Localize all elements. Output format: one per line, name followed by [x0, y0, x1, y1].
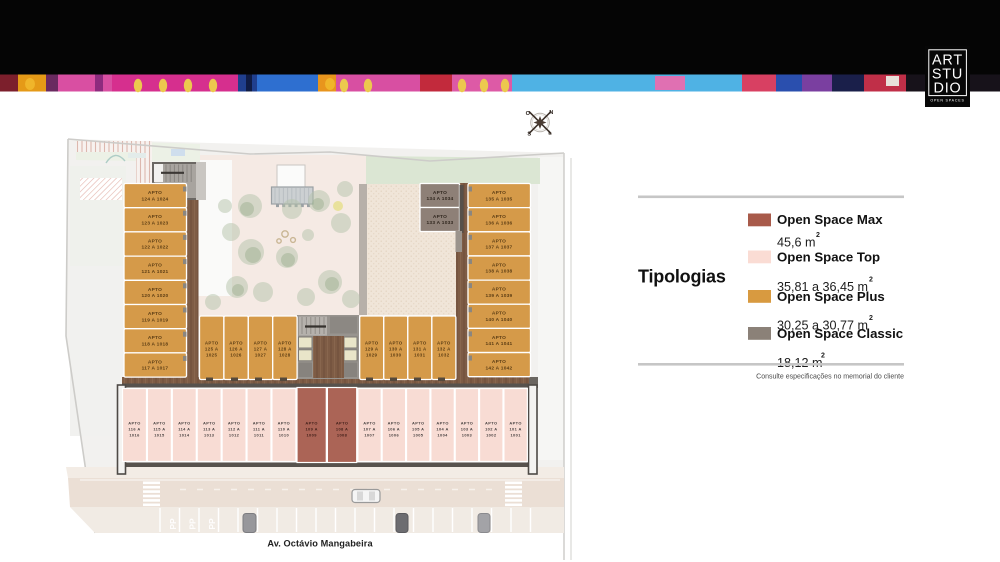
svg-text:APTO: APTO [148, 214, 162, 220]
svg-text:1015: 1015 [154, 433, 165, 438]
svg-text:Consulte especificações no mem: Consulte especificações no memorial do c… [756, 374, 904, 381]
svg-text:PP: PP [207, 518, 217, 530]
svg-text:1010: 1010 [279, 433, 290, 438]
svg-text:PP: PP [188, 518, 198, 530]
svg-text:APTO: APTO [205, 340, 219, 345]
svg-text:S: S [527, 132, 531, 138]
svg-text:119 A 1019: 119 A 1019 [142, 317, 169, 323]
svg-text:APTO: APTO [492, 190, 506, 196]
svg-text:102 A: 102 A [485, 427, 497, 432]
svg-text:120 A 1020: 120 A 1020 [142, 293, 169, 299]
svg-text:1007: 1007 [364, 433, 375, 438]
svg-text:45,6 m: 45,6 m [777, 236, 816, 250]
svg-text:1005: 1005 [413, 433, 424, 438]
svg-text:142 A 1042: 142 A 1042 [486, 365, 513, 371]
svg-text:APTO: APTO [433, 214, 447, 220]
svg-text:113 A: 113 A [203, 427, 215, 432]
svg-text:105 A: 105 A [412, 427, 424, 432]
svg-text:APTO: APTO [148, 359, 162, 365]
svg-text:110 A: 110 A [278, 427, 290, 432]
svg-text:Open Space Top: Open Space Top [777, 250, 880, 265]
svg-text:1004: 1004 [437, 433, 448, 438]
svg-text:141 A 1041: 141 A 1041 [486, 341, 513, 347]
svg-text:L: L [548, 131, 552, 137]
svg-text:APTO: APTO [228, 420, 240, 425]
svg-text:114 A: 114 A [178, 427, 190, 432]
svg-text:1031: 1031 [414, 353, 426, 358]
svg-text:APTO: APTO [253, 420, 265, 425]
svg-text:2: 2 [821, 353, 825, 360]
svg-text:124 A 1024: 124 A 1024 [142, 196, 169, 202]
svg-text:APTO: APTO [436, 420, 448, 425]
svg-text:1014: 1014 [179, 433, 190, 438]
svg-text:115 A: 115 A [153, 427, 165, 432]
svg-text:1025: 1025 [206, 353, 218, 358]
svg-text:APTO: APTO [178, 420, 190, 425]
svg-text:1006: 1006 [389, 433, 400, 438]
svg-text:135 A 1035: 135 A 1035 [486, 196, 513, 202]
svg-text:APTO: APTO [153, 420, 165, 425]
svg-text:APTO: APTO [278, 340, 292, 345]
svg-text:116 A: 116 A [128, 427, 140, 432]
svg-text:Open Space Plus: Open Space Plus [777, 289, 885, 304]
svg-text:Tipologias: Tipologias [638, 267, 726, 287]
svg-text:123 A 1023: 123 A 1023 [142, 221, 169, 227]
svg-text:134 A 1034: 134 A 1034 [427, 196, 454, 202]
svg-text:1012: 1012 [229, 433, 240, 438]
svg-text:APTO: APTO [413, 340, 427, 345]
svg-text:106 A: 106 A [388, 427, 400, 432]
svg-text:1002: 1002 [486, 433, 497, 438]
svg-text:APTO: APTO [509, 420, 521, 425]
svg-text:APTO: APTO [148, 190, 162, 196]
svg-text:1009: 1009 [306, 433, 317, 438]
svg-text:APTO: APTO [389, 340, 403, 345]
svg-text:APTO: APTO [254, 340, 268, 345]
svg-text:125 A: 125 A [205, 347, 219, 352]
svg-text:126 A: 126 A [229, 347, 243, 352]
svg-text:DIO: DIO [934, 81, 962, 97]
svg-text:1011: 1011 [254, 433, 265, 438]
svg-text:APTO: APTO [148, 311, 162, 317]
svg-text:103 A: 103 A [461, 427, 473, 432]
svg-text:Open Space Classic: Open Space Classic [777, 326, 903, 341]
svg-text:PP: PP [168, 518, 178, 530]
svg-text:OPEN SPACES: OPEN SPACES [930, 99, 964, 103]
svg-text:APTO: APTO [492, 238, 506, 244]
svg-text:136 A 1036: 136 A 1036 [486, 220, 513, 226]
svg-text:118 A 1018: 118 A 1018 [142, 342, 169, 348]
svg-text:APTO: APTO [492, 335, 506, 341]
svg-text:129 A: 129 A [365, 347, 379, 352]
svg-text:1013: 1013 [204, 433, 215, 438]
svg-text:2: 2 [869, 315, 873, 322]
svg-text:107 A: 107 A [363, 427, 375, 432]
svg-text:APTO: APTO [148, 263, 162, 269]
svg-text:138 A 1038: 138 A 1038 [486, 269, 513, 275]
svg-text:1008: 1008 [337, 433, 348, 438]
svg-text:APTO: APTO [492, 214, 506, 220]
svg-text:1001: 1001 [510, 433, 521, 438]
svg-text:1030: 1030 [390, 353, 402, 358]
svg-text:APTO: APTO [485, 420, 497, 425]
svg-text:APTO: APTO [128, 420, 140, 425]
svg-text:O: O [526, 111, 531, 117]
svg-text:128 A: 128 A [278, 347, 292, 352]
svg-text:121 A 1021: 121 A 1021 [142, 269, 169, 275]
svg-text:117 A 1017: 117 A 1017 [142, 366, 169, 372]
svg-text:111 A: 111 A [253, 427, 265, 432]
svg-text:130 A: 130 A [389, 347, 403, 352]
svg-text:APTO: APTO [305, 420, 317, 425]
svg-text:133 A 1033: 133 A 1033 [427, 220, 454, 226]
svg-text:137 A 1037: 137 A 1037 [486, 245, 513, 251]
svg-text:APTO: APTO [412, 420, 424, 425]
svg-text:APTO: APTO [365, 340, 379, 345]
svg-text:APTO: APTO [492, 311, 506, 317]
svg-text:APTO: APTO [278, 420, 290, 425]
svg-text:122 A 1022: 122 A 1022 [142, 245, 169, 251]
svg-text:112 A: 112 A [228, 427, 240, 432]
svg-text:1029: 1029 [366, 353, 378, 358]
svg-text:1027: 1027 [255, 353, 267, 358]
svg-text:109 A: 109 A [305, 427, 317, 432]
svg-text:APTO: APTO [148, 335, 162, 341]
svg-text:APTO: APTO [461, 420, 473, 425]
svg-text:132 A: 132 A [437, 347, 451, 352]
svg-text:APTO: APTO [363, 420, 375, 425]
svg-text:2: 2 [869, 277, 873, 284]
svg-text:APTO: APTO [492, 262, 506, 268]
svg-text:101 A: 101 A [509, 427, 521, 432]
svg-text:APTO: APTO [492, 287, 506, 293]
svg-text:1016: 1016 [129, 433, 140, 438]
svg-text:APTO: APTO [388, 420, 400, 425]
svg-text:1003: 1003 [462, 433, 473, 438]
svg-text:APTO: APTO [336, 420, 348, 425]
svg-text:APTO: APTO [229, 340, 243, 345]
svg-text:Open Space Max: Open Space Max [777, 212, 883, 227]
svg-text:104 A: 104 A [436, 427, 448, 432]
svg-text:Av. Octávio Mangabeira: Av. Octávio Mangabeira [267, 539, 373, 549]
svg-text:APTO: APTO [148, 238, 162, 244]
svg-text:127 A: 127 A [254, 347, 268, 352]
svg-text:APTO: APTO [148, 287, 162, 293]
svg-text:APTO: APTO [203, 420, 215, 425]
svg-text:139 A 1039: 139 A 1039 [486, 293, 513, 299]
svg-text:APTO: APTO [492, 359, 506, 365]
svg-text:2: 2 [816, 232, 820, 239]
svg-text:APTO: APTO [437, 340, 451, 345]
svg-text:N: N [549, 110, 553, 116]
svg-text:1032: 1032 [438, 353, 450, 358]
svg-text:140 A 1040: 140 A 1040 [486, 317, 513, 323]
svg-text:108 A: 108 A [336, 427, 348, 432]
svg-text:APTO: APTO [433, 190, 447, 196]
svg-text:1026: 1026 [230, 353, 242, 358]
svg-text:131 A: 131 A [413, 347, 427, 352]
svg-text:1028: 1028 [279, 353, 291, 358]
